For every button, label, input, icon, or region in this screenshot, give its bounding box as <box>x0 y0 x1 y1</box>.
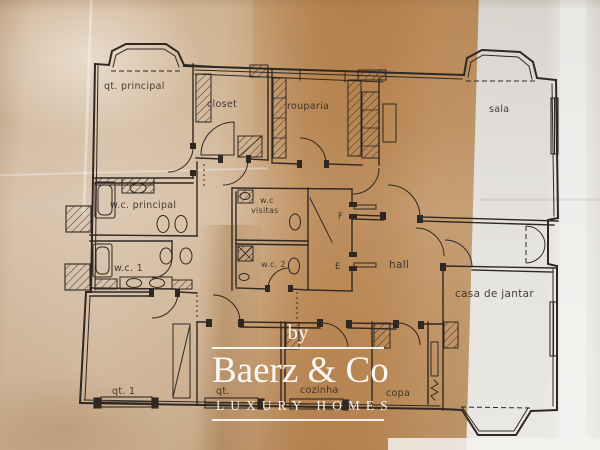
label-casa-de-jantar: casa de jantar <box>455 288 534 300</box>
label-closet: closet <box>207 99 237 110</box>
label-wc-visitas-1: w.c <box>260 196 274 205</box>
watermark-brand: Baerz & Co <box>212 352 384 389</box>
label-lift-e: E <box>335 262 341 272</box>
label-qt-principal: qt. principal <box>104 81 165 92</box>
label-hall: hall <box>389 259 409 271</box>
label-qt-1: qt. 1 <box>112 386 135 397</box>
watermark: by Baerz & Co LUXURY HOMES <box>212 322 384 421</box>
label-lift-f: F <box>338 212 343 222</box>
label-rouparia: rouparia <box>287 101 329 112</box>
watermark-rule-bottom <box>212 419 384 421</box>
label-wc-principal: w.c. principal <box>110 200 176 211</box>
watermark-by: by <box>212 322 384 343</box>
label-sala: sala <box>489 104 509 115</box>
scanned-floorplan-photo: qt. principal closet rouparia sala w.c. … <box>0 0 600 450</box>
watermark-rule-top <box>212 347 384 349</box>
label-wc-visitas-2: visitas <box>251 206 279 215</box>
watermark-tagline: LUXURY HOMES <box>212 398 384 414</box>
label-wc-2: w.c. 2 <box>261 260 286 269</box>
label-wc-1: w.c. 1 <box>114 263 143 274</box>
